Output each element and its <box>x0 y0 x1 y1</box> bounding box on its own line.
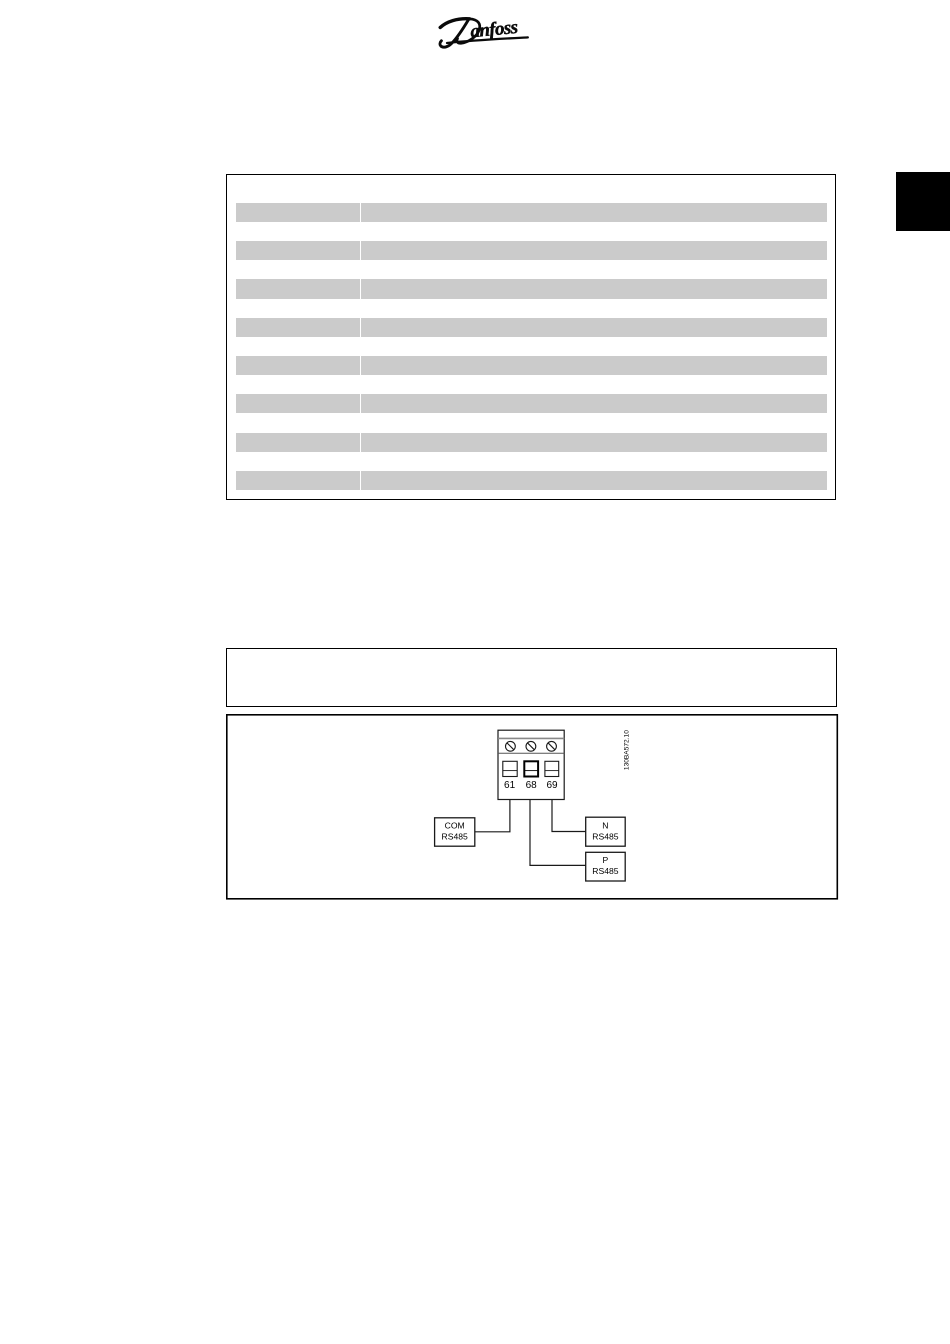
svg-text:68: 68 <box>526 780 538 791</box>
svg-text:P: P <box>603 855 609 865</box>
svg-text:130BA572.10: 130BA572.10 <box>624 730 631 770</box>
svg-text:RS485: RS485 <box>592 866 618 876</box>
svg-text:69: 69 <box>546 780 558 791</box>
svg-text:RS485: RS485 <box>442 831 468 841</box>
svg-text:61: 61 <box>504 780 516 791</box>
svg-text:RS485: RS485 <box>592 831 618 841</box>
svg-text:COM: COM <box>445 820 465 830</box>
svg-text:N: N <box>602 820 608 830</box>
